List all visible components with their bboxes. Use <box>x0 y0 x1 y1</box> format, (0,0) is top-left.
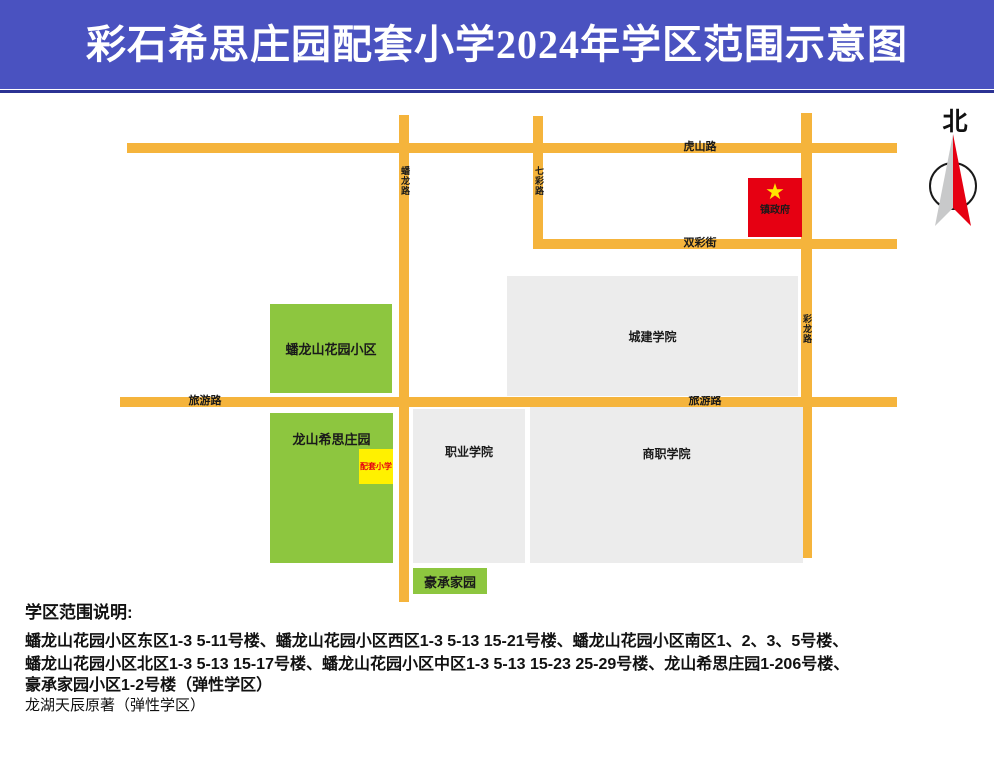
star-icon: ★ <box>765 179 785 205</box>
block-zhiye-college: 职业学院 <box>413 409 525 563</box>
page-title: 彩石希思庄园配套小学2024年学区范围示意图 <box>0 0 994 89</box>
block-label: 城建学院 <box>507 328 798 345</box>
road-label-shuangcai: 双彩街 <box>660 238 740 250</box>
block-label: 镇政府 <box>748 205 802 217</box>
title-banner-underline <box>0 90 994 93</box>
block-shangzhi-college: 商职学院 <box>530 407 803 563</box>
block-haocheng-community: 豪承家园 <box>413 568 487 594</box>
block-label: 职业学院 <box>413 409 525 460</box>
block-label: 商职学院 <box>530 407 803 462</box>
road-label-qicai: 七彩路 <box>534 166 544 196</box>
block-label: 豪承家园 <box>413 572 487 591</box>
legend-heading: 学区范围说明: <box>25 598 133 623</box>
compass-icon <box>926 132 980 230</box>
road-label-lvyou-west: 旅游路 <box>175 396 235 408</box>
block-town-government: ★ 镇政府 <box>748 178 802 237</box>
school-marker-label: 配套小学 <box>359 461 393 472</box>
road-lvyou <box>120 397 897 407</box>
block-longshan-xisi-estate: 龙山希思庄园 <box>270 413 393 563</box>
legend-line-1: 蟠龙山花园小区东区1-3 5-11号楼、蟠龙山花园小区西区1-3 5-13 15… <box>25 627 848 651</box>
road-label-hushan: 虎山路 <box>660 142 740 154</box>
legend-line-4: 龙湖天辰原著（弹性学区） <box>25 694 205 715</box>
block-panlongshan-community: 蟠龙山花园小区 <box>270 304 392 393</box>
schematic-map-page: 彩石希思庄园配套小学2024年学区范围示意图 虎山路 双彩街 旅游路 旅游路 蟠… <box>0 0 994 757</box>
road-label-panlong: 蟠龙路 <box>400 166 410 196</box>
block-label: 龙山希思庄园 <box>270 413 393 448</box>
block-label: 蟠龙山花园小区 <box>270 339 392 358</box>
block-chengjian-college: 城建学院 <box>507 276 798 396</box>
school-marker: 配套小学 <box>359 449 393 484</box>
road-hushan <box>127 143 897 153</box>
road-label-cailong: 彩龙路 <box>802 314 812 344</box>
legend-line-3: 豪承家园小区1-2号楼（弹性学区） <box>25 671 272 695</box>
title-banner: 彩石希思庄园配套小学2024年学区范围示意图 <box>0 0 994 89</box>
